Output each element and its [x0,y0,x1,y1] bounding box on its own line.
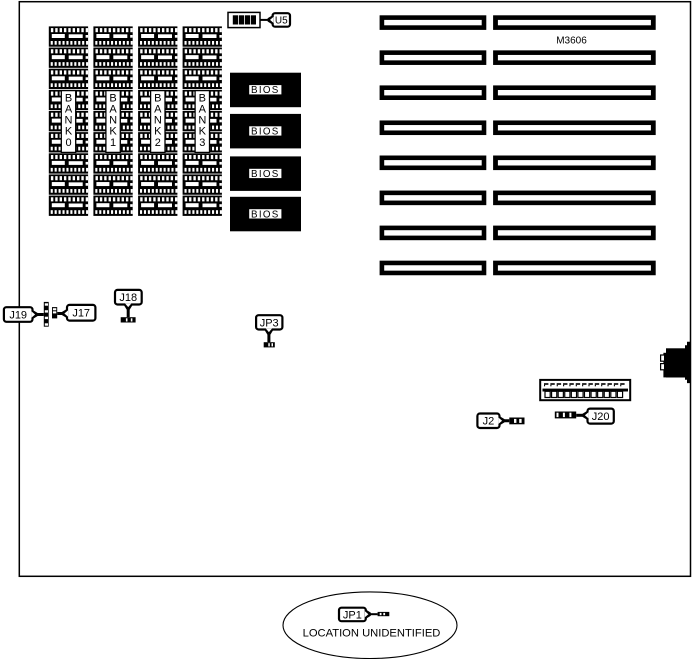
svg-text:1: 1 [110,137,116,149]
svg-text:K: K [65,126,73,138]
svg-text:3: 3 [199,137,205,149]
svg-text:K: K [109,126,117,138]
svg-text:J19: J19 [9,309,27,321]
svg-text:0: 0 [65,137,71,149]
svg-text:J17: J17 [72,308,90,320]
svg-text:JP3: JP3 [260,317,279,329]
svg-text:J2: J2 [483,416,495,428]
svg-text:LOCATION UNIDENTIFIED: LOCATION UNIDENTIFIED [303,628,441,640]
svg-text:2: 2 [155,137,161,149]
svg-text:BIOS: BIOS [251,85,280,96]
svg-text:J20: J20 [592,411,610,423]
svg-text:A: A [65,103,73,115]
svg-text:JP1: JP1 [343,609,362,621]
svg-text:BIOS: BIOS [251,169,280,180]
svg-text:A: A [199,103,207,115]
svg-text:A: A [154,103,162,115]
svg-text:BIOS: BIOS [251,209,280,220]
svg-text:U5: U5 [275,16,288,27]
svg-text:K: K [199,126,207,138]
svg-text:BIOS: BIOS [251,126,280,137]
svg-text:K: K [154,126,162,138]
svg-text:M3606: M3606 [556,35,587,46]
svg-text:A: A [109,103,117,115]
svg-text:J18: J18 [119,292,137,304]
